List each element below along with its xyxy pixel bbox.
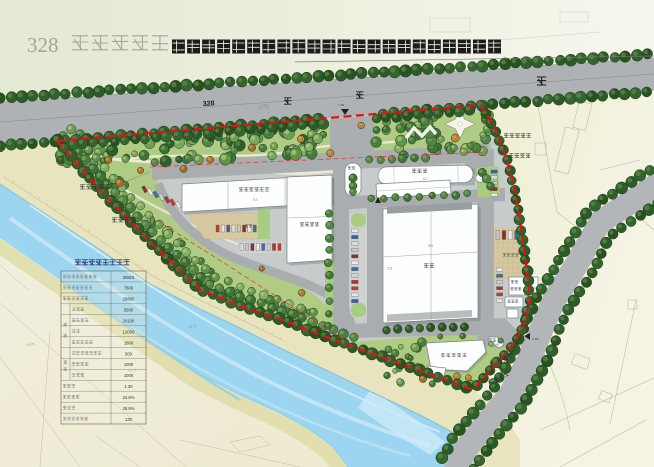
svg-text:1800: 1800: [124, 340, 134, 345]
svg-text:9.1M: 9.1M: [532, 337, 539, 341]
svg-text:24.8%: 24.8%: [123, 395, 135, 400]
svg-text:1.30: 1.30: [124, 384, 133, 389]
svg-text:73: 73: [387, 266, 393, 271]
svg-text:270: 270: [259, 104, 270, 111]
svg-text:60: 60: [423, 176, 428, 181]
svg-text:1000: 1000: [124, 362, 134, 367]
svg-text:130: 130: [125, 417, 133, 422]
svg-text:93: 93: [253, 197, 258, 202]
svg-text:500: 500: [125, 351, 133, 356]
svg-text:30815: 30815: [123, 275, 135, 280]
svg-text:7600: 7600: [124, 286, 134, 291]
svg-text:5500: 5500: [124, 308, 134, 313]
svg-text:328: 328: [203, 100, 215, 108]
svg-text:1000: 1000: [124, 373, 134, 378]
svg-text:55: 55: [428, 243, 434, 248]
svg-text:12000: 12000: [123, 329, 135, 334]
svg-text:20100: 20100: [123, 319, 135, 324]
svg-text:328: 328: [27, 33, 59, 57]
svg-text:7.0M: 7.0M: [338, 103, 345, 107]
svg-text:29800: 29800: [123, 297, 135, 302]
svg-text:28.9%: 28.9%: [123, 406, 135, 411]
